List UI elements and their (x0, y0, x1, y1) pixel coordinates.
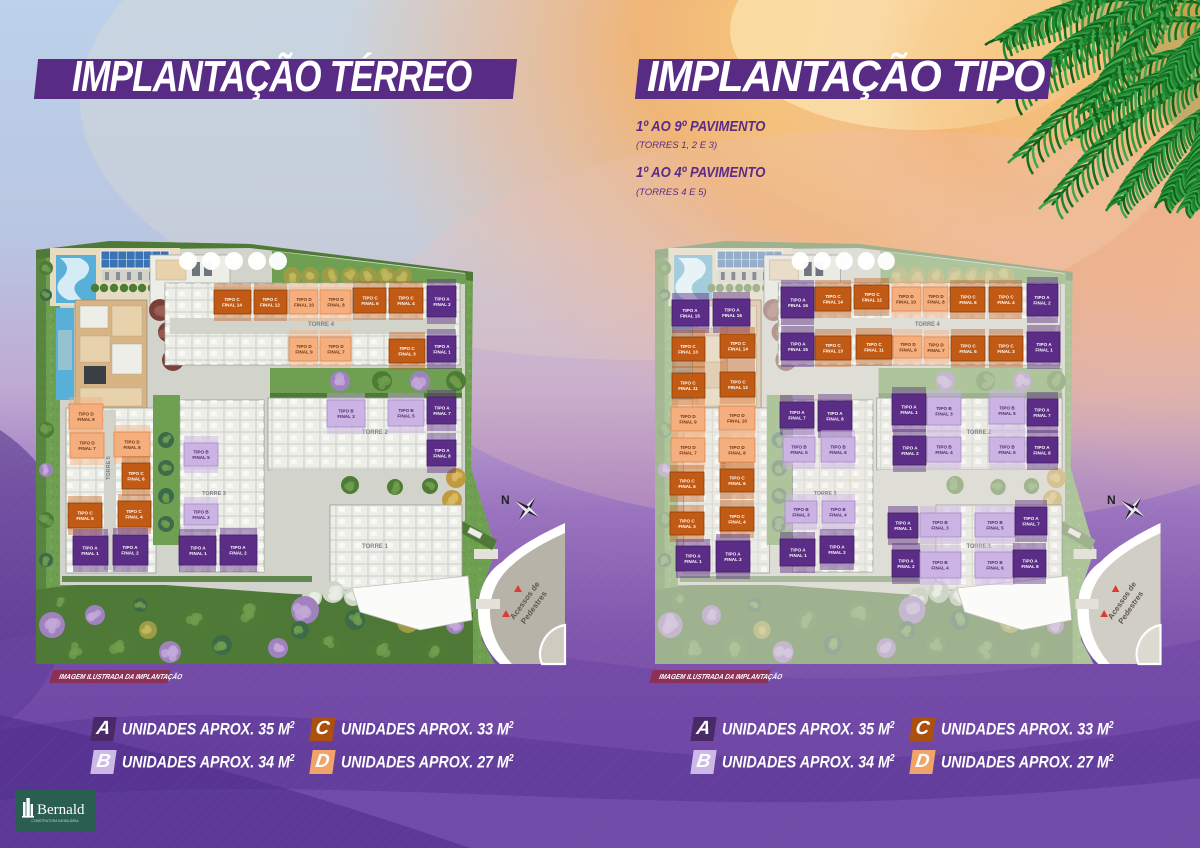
svg-text:TIPO D: TIPO D (328, 297, 344, 302)
svg-text:N: N (501, 493, 510, 507)
svg-text:FINAL 4: FINAL 4 (829, 513, 847, 518)
svg-text:TIPO A: TIPO A (230, 545, 246, 550)
svg-text:FINAL 3: FINAL 3 (792, 513, 810, 518)
svg-text:FINAL 6: FINAL 6 (127, 477, 145, 482)
svg-text:TIPO A: TIPO A (902, 445, 918, 450)
svg-text:FINAL 1: FINAL 1 (189, 551, 207, 556)
svg-text:FINAL 4: FINAL 4 (728, 520, 746, 525)
svg-text:FINAL 6: FINAL 6 (728, 481, 746, 486)
svg-text:TIPO A: TIPO A (434, 296, 450, 301)
svg-text:FINAL 3: FINAL 3 (997, 349, 1015, 354)
svg-text:FINAL 5: FINAL 5 (678, 484, 696, 489)
svg-text:TIPO B: TIPO B (398, 408, 414, 413)
svg-text:TIPO C: TIPO C (730, 341, 746, 346)
svg-text:FINAL 12: FINAL 12 (260, 303, 280, 308)
svg-text:TIPO C: TIPO C (680, 380, 696, 385)
svg-text:TORRE 3: TORRE 3 (202, 491, 226, 497)
svg-text:FINAL 2: FINAL 2 (433, 302, 451, 307)
svg-text:TIPO B: TIPO B (932, 520, 948, 525)
svg-text:TIPO D: TIPO D (328, 344, 344, 349)
svg-text:TIPO D: TIPO D (729, 413, 745, 418)
svg-text:FINAL 14: FINAL 14 (728, 347, 748, 352)
svg-text:TIPO B: TIPO B (830, 444, 846, 449)
svg-text:FINAL 1: FINAL 1 (433, 350, 451, 355)
svg-text:FINAL 5: FINAL 5 (986, 526, 1004, 531)
svg-text:TIPO D: TIPO D (680, 445, 696, 450)
svg-text:TIPO A: TIPO A (829, 544, 845, 549)
svg-text:FINAL 15: FINAL 15 (788, 347, 808, 352)
svg-text:TIPO C: TIPO C (679, 478, 695, 483)
svg-text:FINAL 15: FINAL 15 (680, 314, 700, 319)
svg-text:TIPO C: TIPO C (864, 292, 880, 297)
svg-text:TIPO B: TIPO B (932, 560, 948, 565)
svg-text:TORRE 5: TORRE 5 (106, 456, 112, 480)
svg-text:TIPO A: TIPO A (1022, 558, 1038, 563)
svg-text:TIPO C: TIPO C (398, 295, 414, 300)
svg-text:FINAL 5: FINAL 5 (790, 450, 808, 455)
svg-text:TIPO A: TIPO A (725, 551, 741, 556)
svg-text:TIPO D: TIPO D (898, 294, 914, 299)
svg-text:TIPO A: TIPO A (434, 344, 450, 349)
svg-text:FINAL 6: FINAL 6 (829, 450, 847, 455)
svg-text:FINAL 3: FINAL 3 (935, 412, 953, 417)
svg-text:FINAL 5: FINAL 5 (998, 411, 1016, 416)
svg-text:TIPO C: TIPO C (825, 294, 841, 299)
svg-text:FINAL 8: FINAL 8 (927, 300, 945, 305)
svg-text:FINAL 8: FINAL 8 (433, 454, 451, 459)
svg-text:FINAL 9: FINAL 9 (679, 420, 697, 425)
svg-text:FINAL 2: FINAL 2 (229, 551, 247, 556)
svg-text:TIPO C: TIPO C (998, 294, 1014, 299)
svg-text:FINAL 4: FINAL 4 (931, 566, 949, 571)
svg-text:TIPO A: TIPO A (682, 308, 698, 313)
svg-text:FINAL 13: FINAL 13 (823, 349, 843, 354)
svg-text:TIPO D: TIPO D (296, 344, 312, 349)
svg-text:FINAL 7: FINAL 7 (679, 451, 697, 456)
svg-text:TIPO A: TIPO A (122, 545, 138, 550)
svg-text:TIPO B: TIPO B (338, 408, 354, 413)
svg-text:TIPO C: TIPO C (729, 514, 745, 519)
svg-text:FINAL 7: FINAL 7 (433, 411, 451, 416)
svg-text:FINAL 7: FINAL 7 (1022, 522, 1040, 527)
svg-text:TIPO A: TIPO A (789, 410, 805, 415)
svg-text:FINAL 12: FINAL 12 (728, 385, 748, 390)
svg-text:FINAL 14: FINAL 14 (222, 303, 242, 308)
svg-text:TIPO C: TIPO C (680, 344, 696, 349)
svg-text:TIPO A: TIPO A (82, 545, 98, 550)
svg-text:TIPO A: TIPO A (434, 448, 450, 453)
svg-text:TIPO A: TIPO A (898, 558, 914, 563)
svg-text:FINAL 12: FINAL 12 (862, 298, 882, 303)
svg-text:FINAL 9: FINAL 9 (77, 417, 95, 422)
svg-text:TIPO A: TIPO A (827, 411, 843, 416)
svg-text:FINAL 1: FINAL 1 (900, 410, 918, 415)
svg-text:FINAL 3: FINAL 3 (931, 526, 949, 531)
svg-text:FINAL 7: FINAL 7 (1033, 413, 1051, 418)
svg-text:TIPO C: TIPO C (679, 518, 695, 523)
svg-text:FINAL 3: FINAL 3 (398, 352, 416, 357)
svg-text:TORRE 1: TORRE 1 (362, 544, 389, 550)
svg-text:TIPO B: TIPO B (987, 520, 1003, 525)
svg-text:FINAL 2: FINAL 2 (1033, 301, 1051, 306)
svg-text:FINAL 9: FINAL 9 (295, 350, 313, 355)
svg-text:FINAL 11: FINAL 11 (678, 386, 698, 391)
svg-text:TIPO D: TIPO D (680, 414, 696, 419)
svg-text:FINAL 1: FINAL 1 (789, 553, 807, 558)
svg-text:FINAL 16: FINAL 16 (788, 303, 808, 308)
svg-text:FINAL 2: FINAL 2 (121, 551, 139, 556)
svg-text:TIPO A: TIPO A (901, 404, 917, 409)
svg-text:TIPO A: TIPO A (1034, 407, 1050, 412)
svg-text:FINAL 4: FINAL 4 (397, 301, 415, 306)
svg-text:TIPO B: TIPO B (936, 406, 952, 411)
svg-text:FINAL 3: FINAL 3 (192, 515, 210, 520)
svg-text:TIPO C: TIPO C (998, 343, 1014, 348)
svg-text:FINAL 8: FINAL 8 (826, 417, 844, 422)
svg-text:FINAL 3: FINAL 3 (337, 414, 355, 419)
svg-text:TORRE 4: TORRE 4 (915, 322, 940, 328)
svg-text:TORRE 2: TORRE 2 (967, 430, 992, 436)
svg-text:TIPO C: TIPO C (729, 475, 745, 480)
svg-text:FINAL 7: FINAL 7 (788, 416, 806, 421)
svg-text:TIPO C: TIPO C (730, 379, 746, 384)
svg-text:TIPO C: TIPO C (866, 342, 882, 347)
svg-text:FINAL 5: FINAL 5 (76, 516, 94, 521)
svg-text:FINAL 16: FINAL 16 (722, 313, 742, 318)
svg-text:FINAL 14: FINAL 14 (823, 300, 843, 305)
svg-text:FINAL 2: FINAL 2 (897, 564, 915, 569)
svg-text:TIPO B: TIPO B (999, 405, 1015, 410)
svg-text:TIPO B: TIPO B (791, 444, 807, 449)
svg-text:TIPO A: TIPO A (895, 520, 911, 525)
svg-text:FINAL 8: FINAL 8 (123, 445, 141, 450)
svg-text:TIPO B: TIPO B (793, 507, 809, 512)
svg-text:TIPO C: TIPO C (362, 295, 378, 300)
svg-text:FINAL 1: FINAL 1 (1035, 348, 1053, 353)
svg-text:TIPO A: TIPO A (1023, 516, 1039, 521)
svg-text:TIPO A: TIPO A (190, 545, 206, 550)
svg-text:FINAL 4: FINAL 4 (935, 450, 953, 455)
svg-text:FINAL 2: FINAL 2 (828, 550, 846, 555)
svg-text:TIPO D: TIPO D (928, 294, 944, 299)
svg-text:TIPO A: TIPO A (1034, 295, 1050, 300)
svg-text:TIPO A: TIPO A (434, 405, 450, 410)
svg-text:FINAL 4: FINAL 4 (125, 515, 143, 520)
svg-text:FINAL 1: FINAL 1 (684, 559, 702, 564)
svg-text:FINAL 7: FINAL 7 (327, 350, 345, 355)
svg-text:TIPO C: TIPO C (399, 346, 415, 351)
svg-text:TIPO D: TIPO D (928, 342, 944, 347)
svg-text:FINAL 8: FINAL 8 (728, 451, 746, 456)
svg-text:FINAL 13: FINAL 13 (678, 350, 698, 355)
svg-text:N: N (1107, 493, 1116, 507)
svg-text:TIPO C: TIPO C (126, 509, 142, 514)
svg-text:TIPO D: TIPO D (79, 440, 95, 445)
svg-text:FINAL 3: FINAL 3 (678, 524, 696, 529)
svg-text:TIPO C: TIPO C (960, 343, 976, 348)
svg-text:FINAL 6: FINAL 6 (986, 566, 1004, 571)
svg-text:TIPO B: TIPO B (193, 509, 209, 514)
svg-text:TIPO A: TIPO A (685, 553, 701, 558)
svg-text:TIPO C: TIPO C (262, 297, 278, 302)
svg-text:TIPO B: TIPO B (193, 449, 209, 454)
svg-text:TORRE 2: TORRE 2 (362, 430, 389, 436)
svg-text:FINAL 4: FINAL 4 (997, 300, 1015, 305)
svg-text:TIPO C: TIPO C (960, 294, 976, 299)
svg-text:FINAL 2: FINAL 2 (901, 451, 919, 456)
svg-text:FINAL 8: FINAL 8 (1021, 564, 1039, 569)
svg-text:TIPO D: TIPO D (78, 411, 94, 416)
svg-text:TIPO C: TIPO C (224, 297, 240, 302)
svg-text:TIPO A: TIPO A (724, 307, 740, 312)
svg-text:TIPO D: TIPO D (729, 445, 745, 450)
svg-text:TIPO A: TIPO A (1036, 342, 1052, 347)
svg-text:FINAL 8: FINAL 8 (327, 303, 345, 308)
svg-text:FINAL 2: FINAL 2 (724, 557, 742, 562)
svg-text:FINAL 7: FINAL 7 (927, 348, 945, 353)
svg-text:FINAL 6: FINAL 6 (361, 301, 379, 306)
svg-text:FINAL 5: FINAL 5 (397, 414, 415, 419)
svg-text:TIPO B: TIPO B (830, 507, 846, 512)
svg-text:TIPO D: TIPO D (296, 297, 312, 302)
svg-text:FINAL 7: FINAL 7 (78, 446, 96, 451)
svg-text:FINAL 5: FINAL 5 (959, 349, 977, 354)
svg-text:FINAL 10: FINAL 10 (727, 419, 747, 424)
svg-text:TIPO C: TIPO C (128, 471, 144, 476)
svg-text:Bernald: Bernald (37, 802, 85, 818)
svg-text:TIPO C: TIPO C (77, 510, 93, 515)
svg-text:TORRE 4: TORRE 4 (308, 322, 335, 328)
svg-text:FINAL 10: FINAL 10 (294, 303, 314, 308)
svg-text:TIPO A: TIPO A (790, 341, 806, 346)
svg-text:CONSTRUTORA IMOBILIÁRIA: CONSTRUTORA IMOBILIÁRIA (31, 819, 79, 823)
svg-text:TIPO A: TIPO A (790, 297, 806, 302)
svg-text:TIPO D: TIPO D (900, 342, 916, 347)
svg-text:TIPO A: TIPO A (790, 547, 806, 552)
svg-text:FINAL 1: FINAL 1 (894, 526, 912, 531)
svg-text:FINAL 5: FINAL 5 (192, 455, 210, 460)
svg-text:FINAL 1: FINAL 1 (81, 551, 99, 556)
svg-text:TIPO B: TIPO B (999, 444, 1015, 449)
svg-text:FINAL 6: FINAL 6 (998, 450, 1016, 455)
svg-text:TIPO A: TIPO A (1034, 445, 1050, 450)
svg-text:TIPO C: TIPO C (825, 343, 841, 348)
svg-text:TIPO B: TIPO B (936, 444, 952, 449)
svg-text:TIPO D: TIPO D (124, 439, 140, 444)
svg-text:FINAL 11: FINAL 11 (864, 348, 884, 353)
svg-text:FINAL 8: FINAL 8 (1033, 451, 1051, 456)
svg-text:FINAL 10: FINAL 10 (896, 300, 916, 305)
svg-text:FINAL 6: FINAL 6 (959, 300, 977, 305)
svg-text:TIPO B: TIPO B (987, 560, 1003, 565)
svg-text:FINAL 9: FINAL 9 (899, 348, 917, 353)
